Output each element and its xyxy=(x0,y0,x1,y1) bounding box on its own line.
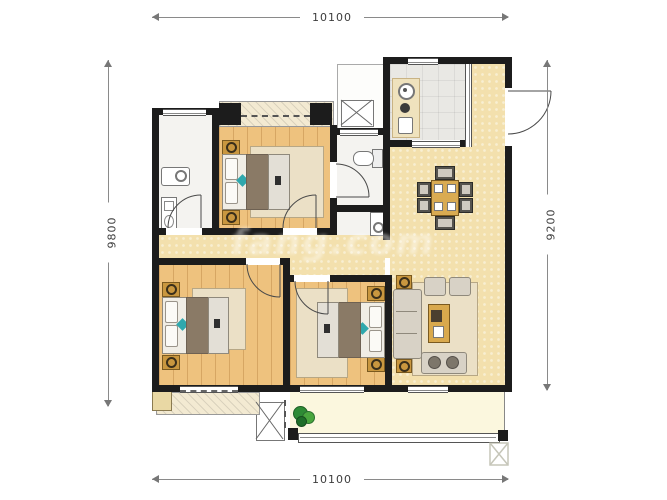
balcony-side-line xyxy=(504,392,505,434)
arrow-left-icon xyxy=(148,475,159,483)
window xyxy=(163,109,206,116)
nightstand xyxy=(367,357,385,372)
place-setting xyxy=(434,184,443,193)
door-opening-bathroom-middle xyxy=(330,162,337,198)
bed-blanket xyxy=(186,297,210,354)
arrow-up-icon xyxy=(104,56,112,67)
lamp-icon xyxy=(166,357,177,368)
dining-chair xyxy=(417,198,431,213)
balcony-door-window xyxy=(408,386,448,393)
wall xyxy=(283,258,290,392)
corner-marker-box xyxy=(490,443,508,465)
watermark: fang.com xyxy=(228,222,438,268)
wall xyxy=(212,115,219,228)
wall xyxy=(383,64,390,240)
bay-window-dashed xyxy=(180,386,238,393)
corner-marker-x-icon xyxy=(490,443,508,465)
chair-seat xyxy=(462,201,470,210)
balcony-post xyxy=(498,430,508,441)
arrow-left-icon xyxy=(148,13,159,21)
bench-seat xyxy=(428,356,441,369)
dining-chair xyxy=(435,166,455,180)
bench-seat xyxy=(446,356,459,369)
dimension-left-label: 9800 xyxy=(106,203,119,263)
armchair xyxy=(424,277,446,296)
dining-chair xyxy=(459,198,473,213)
chair-seat xyxy=(438,169,452,177)
door-opening-bedroom-bottom xyxy=(294,275,330,282)
table-tray xyxy=(431,310,442,322)
cutting-board xyxy=(398,117,413,134)
cabinet-handle xyxy=(324,324,330,333)
faucet-icon xyxy=(403,88,407,92)
plant-icon xyxy=(296,416,307,427)
pillow xyxy=(225,158,238,180)
arrow-right-icon xyxy=(502,13,513,21)
arrow-up-icon xyxy=(543,56,551,67)
kitchen-slider xyxy=(412,141,460,148)
bed-blanket xyxy=(337,302,361,358)
nightstand xyxy=(222,140,240,155)
chair-seat xyxy=(420,185,428,194)
stove-burner xyxy=(400,103,410,113)
basin-icon xyxy=(164,215,174,228)
place-setting xyxy=(447,202,456,211)
lamp-icon xyxy=(371,288,382,299)
kitchen-divider-door xyxy=(465,64,472,147)
wall xyxy=(152,115,159,392)
lamp-icon xyxy=(226,142,237,153)
dining-chair xyxy=(435,216,455,230)
pillow xyxy=(369,306,382,328)
door-arc-entry xyxy=(508,91,551,134)
pillow xyxy=(165,301,178,323)
balcony-railing-line xyxy=(300,437,496,438)
dimension-right-label: 9200 xyxy=(545,195,558,255)
place-setting xyxy=(434,202,443,211)
washer-drum xyxy=(175,170,187,182)
balcony-opening-dashed xyxy=(284,400,286,428)
balcony-railing xyxy=(298,433,500,443)
nightstand xyxy=(162,355,180,370)
pillow xyxy=(369,330,382,352)
door-opening-entry xyxy=(505,88,512,146)
bay-window-dashed xyxy=(241,115,310,117)
dining-chair xyxy=(417,182,431,197)
dining-chair xyxy=(459,182,473,197)
side-table xyxy=(396,275,412,289)
floor-plan: 10100 10100 9800 9200 fang.com xyxy=(0,0,667,500)
arrow-right-icon xyxy=(502,475,513,483)
chair-seat xyxy=(462,185,470,194)
pillow xyxy=(225,182,238,204)
window xyxy=(300,386,364,393)
entry-floor xyxy=(472,64,505,147)
soap-dish xyxy=(164,201,174,211)
side-table xyxy=(396,359,412,373)
bathroom-middle-floor xyxy=(337,135,383,205)
arrow-down-icon xyxy=(104,400,112,411)
sofa-cushion-line xyxy=(396,333,417,334)
wall xyxy=(385,275,392,392)
cabinet-handle xyxy=(275,176,281,185)
door-opening-bathroom-left xyxy=(166,228,202,235)
bed-blanket xyxy=(246,154,270,210)
chair-seat xyxy=(420,201,428,210)
dimension-bottom-label: 10100 xyxy=(300,473,364,486)
flue-box-bottom-left xyxy=(152,389,172,411)
balcony-floor xyxy=(290,392,505,438)
window xyxy=(340,129,378,136)
sofa-cushion-line xyxy=(396,311,417,312)
vase-icon xyxy=(399,277,410,288)
pillow xyxy=(165,325,178,347)
bay-corner-block xyxy=(219,103,241,125)
nightstand xyxy=(162,282,180,297)
lamp-icon xyxy=(166,284,177,295)
window xyxy=(408,58,438,65)
table-book xyxy=(433,326,444,338)
vase-icon xyxy=(399,361,410,372)
flue-shaft-balcony xyxy=(256,402,285,441)
cabinet-handle xyxy=(214,319,220,328)
flue-shaft-top xyxy=(341,100,374,127)
bay-corner-block xyxy=(310,103,332,125)
chair-seat xyxy=(438,219,452,227)
toilet-bowl xyxy=(353,151,374,166)
wall xyxy=(383,57,512,64)
place-setting xyxy=(447,184,456,193)
armchair xyxy=(449,277,471,296)
nightstand xyxy=(367,286,385,301)
arrow-down-icon xyxy=(543,384,551,395)
dimension-top-label: 10100 xyxy=(300,11,364,24)
kitchen-sink xyxy=(398,83,415,100)
wall xyxy=(330,205,390,212)
sofa xyxy=(393,289,422,359)
balcony-post xyxy=(288,428,298,440)
lamp-icon xyxy=(371,359,382,370)
kitchen-partition xyxy=(390,140,412,147)
